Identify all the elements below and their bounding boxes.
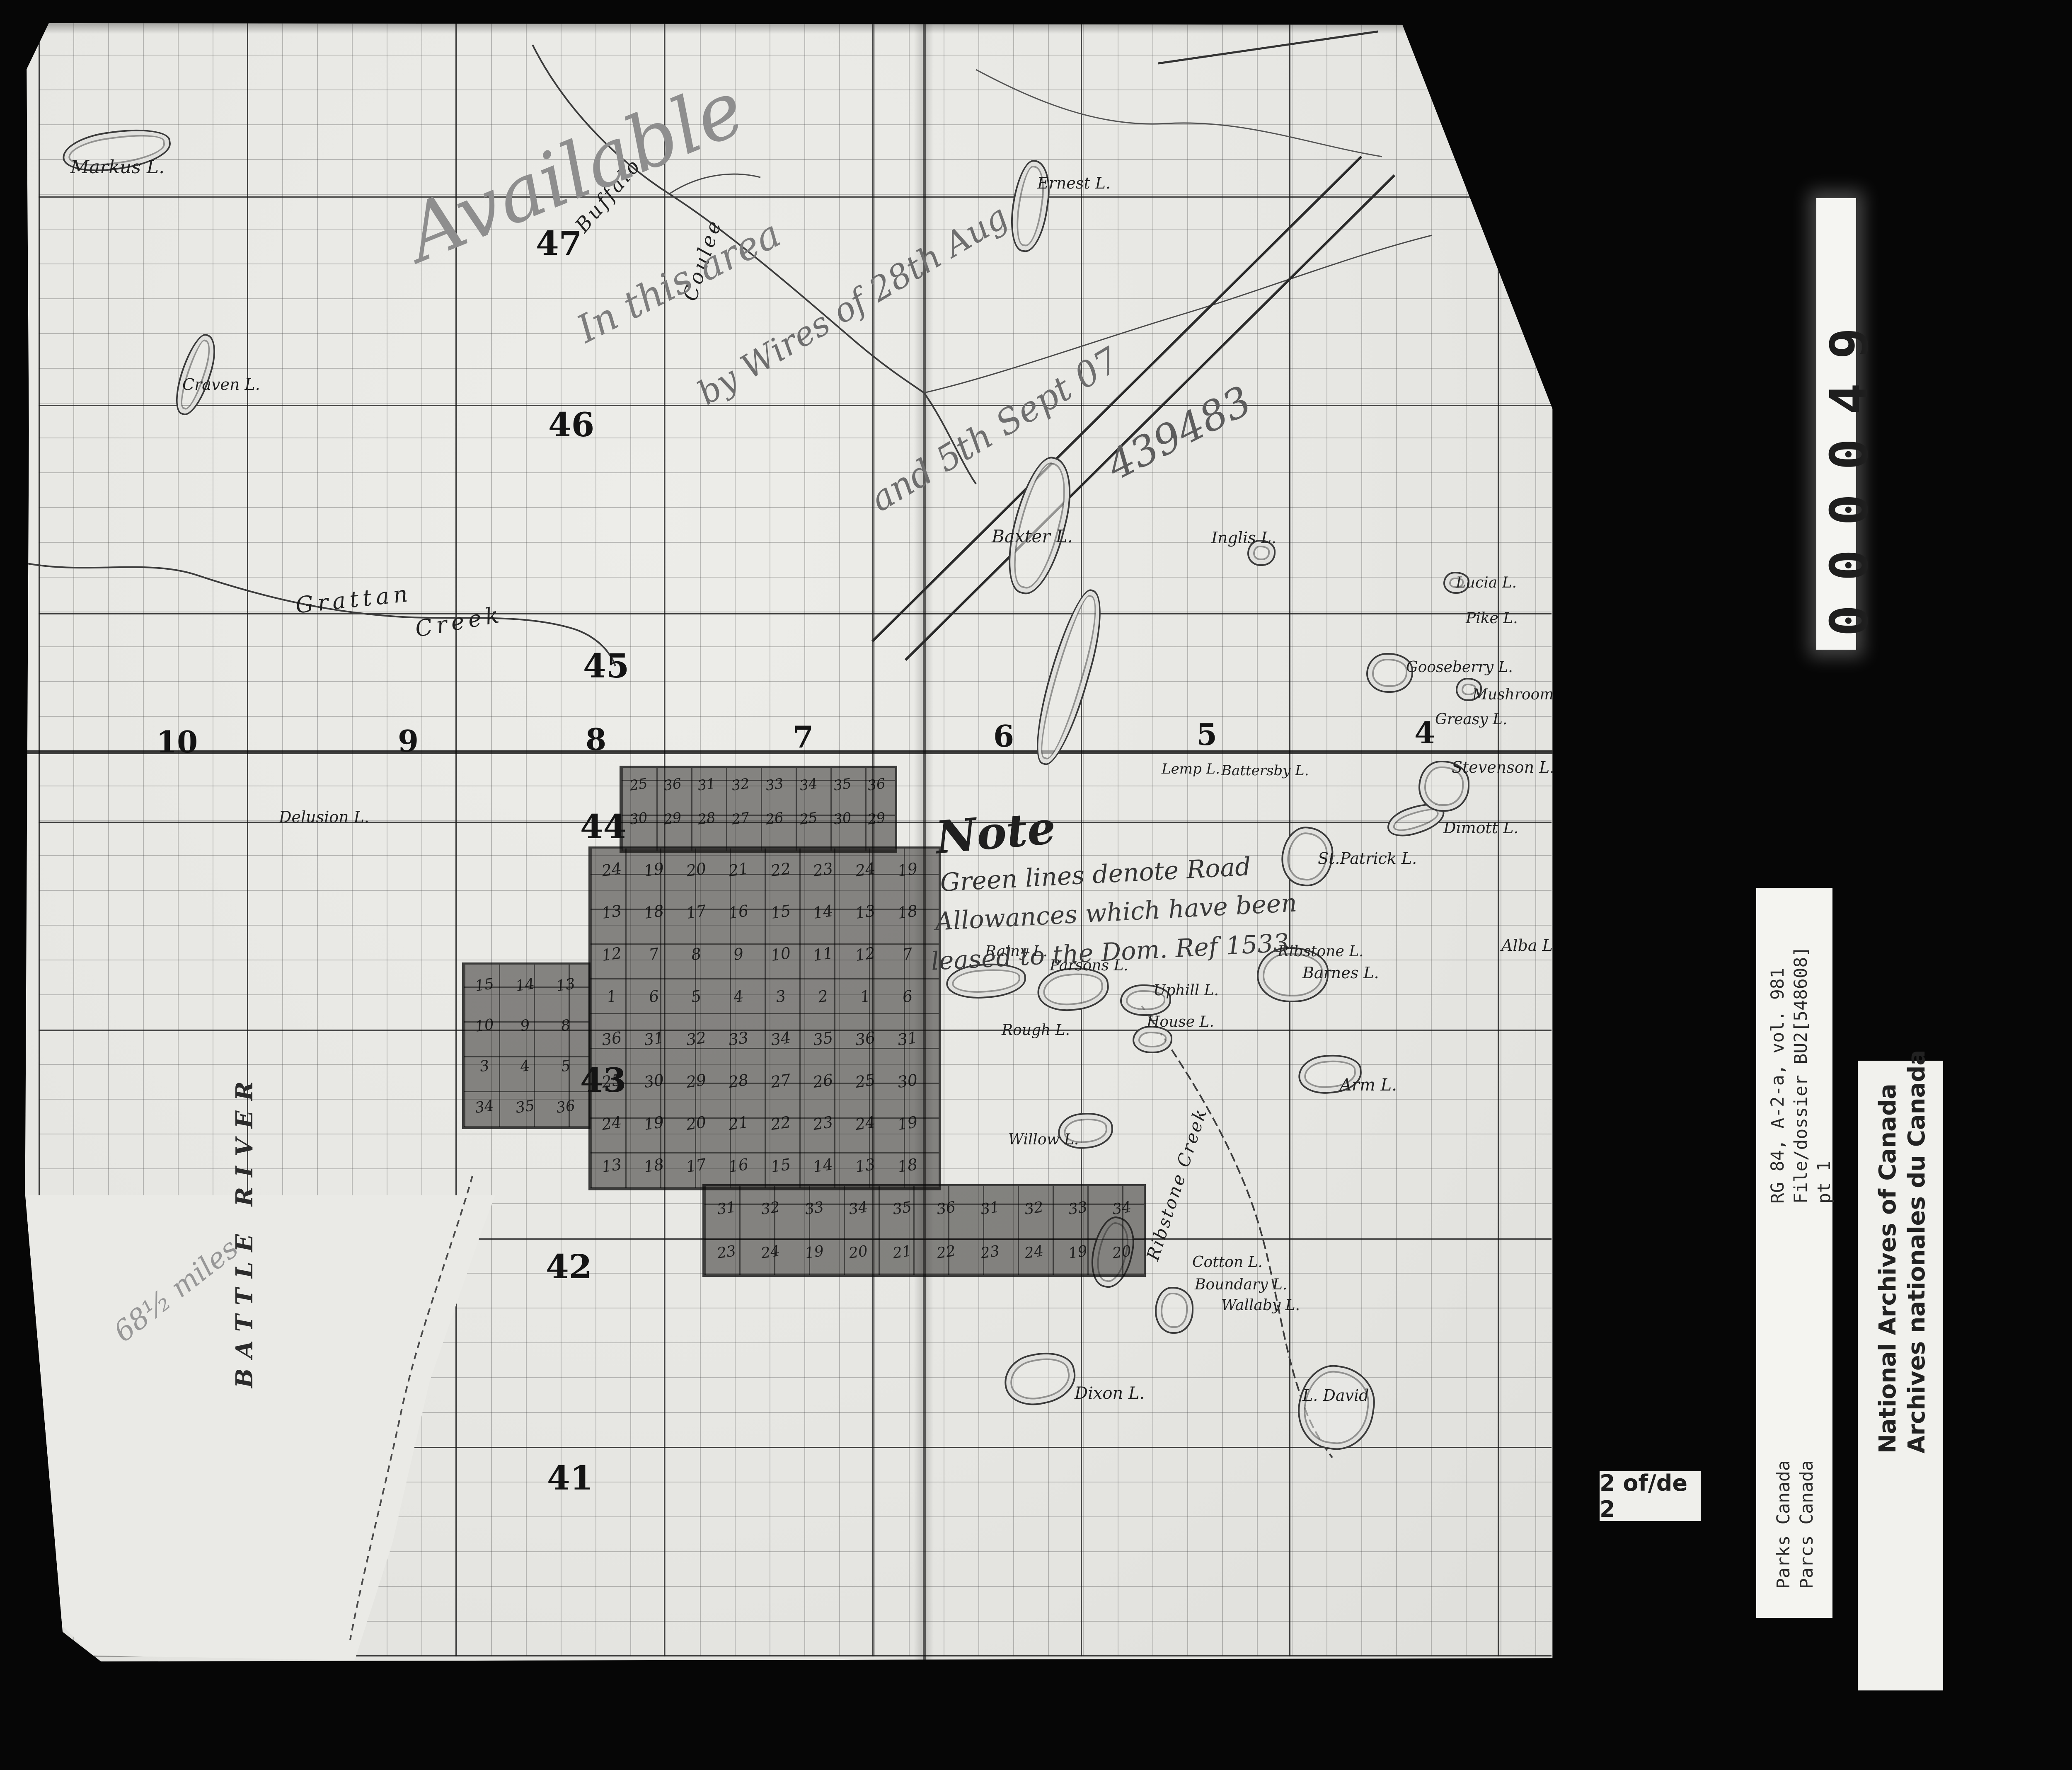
section-number: 14 [799, 888, 847, 936]
lake-label: St.Patrick L. [1318, 849, 1417, 868]
section-number: 18 [630, 1141, 678, 1188]
lake-label: Greasy L. [1435, 711, 1507, 728]
north-contours [976, 70, 1382, 157]
section-number: 31 [965, 1186, 1015, 1233]
township-number: 45 [583, 646, 629, 685]
section-number: 33 [714, 1015, 762, 1062]
lake-label: Markus L. [70, 157, 165, 178]
lake-label: Lemp L. [1162, 761, 1220, 777]
lake-label: Baxter L. [992, 526, 1073, 546]
lake-label: Ernest L. [1037, 174, 1111, 192]
section-number: 13 [591, 888, 636, 936]
section-number: 36 [654, 768, 692, 804]
film-counter-number: 000049 [1819, 304, 1880, 636]
section-number: 21 [877, 1227, 927, 1275]
lake-label: Rough L. [1002, 1022, 1070, 1039]
township-number: 42 [546, 1247, 592, 1286]
section-number: 18 [884, 888, 931, 936]
section-number: 25 [841, 1057, 889, 1105]
section-number: 14 [799, 1141, 847, 1188]
section-number: 15 [757, 888, 804, 936]
lake-label: Dimott L. [1443, 819, 1518, 837]
section-number: 7 [630, 930, 678, 978]
section-number: 18 [884, 1141, 931, 1188]
section-number: 21 [714, 1099, 762, 1147]
archival-reference-text: RG 84, A-2-a, vol. 981 File/dossier BU2[… [1766, 946, 1836, 1204]
pencil-diagonal-3 [1158, 31, 1378, 63]
section-number: 28 [714, 1057, 762, 1105]
leased-township-block: 1514131098345343536 [464, 965, 588, 1127]
section-number: 25 [789, 800, 828, 838]
handwritten-annotation: Note [934, 802, 1058, 864]
section-number: 15 [757, 1141, 804, 1188]
section-number: 36 [921, 1186, 971, 1233]
section-number: 26 [799, 1057, 847, 1105]
department-text: Parks Canada Parcs Canada [1772, 1460, 1818, 1589]
section-number: 1 [841, 972, 889, 1020]
section-number: 22 [921, 1227, 971, 1275]
lake-label: Battersby L. [1221, 762, 1309, 779]
section-number: 20 [672, 1099, 720, 1147]
lake-label: Inglis L. [1211, 529, 1276, 547]
section-number: 29 [654, 800, 692, 838]
section-number: 36 [857, 768, 895, 804]
section-number: 36 [841, 1015, 889, 1062]
section-number: 31 [687, 768, 726, 804]
section-number: 9 [502, 1003, 548, 1049]
township-number: 41 [547, 1458, 593, 1497]
section-number: 23 [799, 849, 847, 894]
section-number: 32 [672, 1015, 720, 1062]
lake-label: Delusion L. [279, 808, 369, 826]
section-number: 10 [757, 930, 804, 978]
lake-shape [1155, 1287, 1193, 1334]
lake-label: Lucia L. [1456, 574, 1517, 591]
lake-label: Arm L. [1340, 1076, 1397, 1095]
section-number: 19 [884, 1099, 931, 1147]
section-number: 3 [757, 972, 804, 1020]
lake-label: Uphill L. [1153, 982, 1219, 999]
reference-line: RG 84, A-2-a, vol. 981 [1766, 946, 1789, 1204]
section-number: 34 [464, 1084, 507, 1127]
section-number: 23 [965, 1227, 1015, 1275]
section-number: 14 [502, 965, 548, 1008]
section-number: 9 [714, 930, 762, 978]
national-archives-strip: National Archives of Canada Archives nat… [1858, 1061, 1943, 1690]
section-number: 4 [502, 1043, 548, 1089]
section-number: 25 [622, 768, 658, 804]
section-number: 3 [464, 1043, 507, 1089]
lake-label: Cotton L. [1192, 1254, 1263, 1271]
township-number: 43 [580, 1061, 626, 1100]
section-number: 34 [789, 768, 828, 804]
section-number: 8 [672, 930, 720, 978]
microfilm-scan: { "film": { "counter_number": "000049", … [0, 0, 2072, 1770]
department-line: Parks Canada [1772, 1460, 1795, 1589]
section-number: 20 [1097, 1227, 1144, 1275]
section-number: 12 [841, 930, 889, 978]
section-number: 30 [823, 800, 862, 838]
section-number: 35 [502, 1084, 548, 1127]
section-number: 27 [721, 800, 760, 838]
section-number: 36 [591, 1015, 636, 1062]
section-number: 6 [884, 972, 931, 1020]
leased-township-block: 2419202122232419131817161514131812789101… [591, 849, 939, 1188]
section-number: 31 [884, 1015, 931, 1062]
range-number: 7 [793, 719, 813, 754]
leased-township-block: 3132333435363132333423241920212223241920 [704, 1186, 1144, 1275]
section-number: 30 [622, 800, 658, 838]
archival-reference-strip: RG 84, A-2-a, vol. 981 File/dossier BU2[… [1756, 888, 1832, 1618]
section-number: 32 [746, 1186, 795, 1233]
range-number: 8 [586, 722, 606, 757]
section-number: 29 [857, 800, 895, 838]
section-number: 10 [464, 1003, 507, 1049]
section-number: 20 [672, 849, 720, 894]
section-number: 34 [1097, 1186, 1144, 1233]
section-number: 31 [630, 1015, 678, 1062]
section-number: 21 [714, 849, 762, 894]
range-number: 10 [156, 724, 198, 759]
section-number: 18 [630, 888, 678, 936]
lake-label: Alba L. [1501, 936, 1558, 955]
section-number: 24 [841, 849, 889, 894]
section-number: 2 [799, 972, 847, 1020]
section-number: 29 [672, 1057, 720, 1105]
page-count-label: 2 of/de 2 [1600, 1471, 1701, 1521]
section-number: 8 [543, 1003, 588, 1049]
section-number: 19 [630, 849, 678, 894]
lake-label: Gooseberry L. [1406, 659, 1513, 676]
section-number: 19 [1053, 1227, 1103, 1275]
lake-label: Craven L. [182, 375, 260, 394]
section-number: 23 [704, 1227, 751, 1275]
lake-label: Willow L. [1008, 1131, 1079, 1148]
department-line: Parcs Canada [1795, 1460, 1818, 1589]
section-number: 24 [591, 849, 636, 894]
section-number: 27 [757, 1057, 804, 1105]
section-number: 35 [799, 1015, 847, 1062]
section-number: 22 [757, 1099, 804, 1147]
lake-label: Boundary L. [1195, 1276, 1287, 1293]
section-number: 4 [714, 972, 762, 1020]
section-number: 22 [757, 849, 804, 894]
section-number: 26 [755, 800, 794, 838]
section-number: 24 [746, 1227, 795, 1275]
section-number: 20 [833, 1227, 883, 1275]
township-number: 44 [580, 807, 626, 846]
section-number: 24 [841, 1099, 889, 1147]
section-number: 32 [721, 768, 760, 804]
section-number: 16 [714, 1141, 762, 1188]
section-number: 16 [714, 888, 762, 936]
range-number: 9 [398, 723, 419, 759]
section-number: 12 [591, 930, 636, 978]
lake-label: Pike L. [1466, 610, 1518, 627]
section-number: 30 [630, 1057, 678, 1105]
section-number: 31 [704, 1186, 751, 1233]
range-number: 4 [1414, 715, 1435, 750]
battle-river-label: BATTLE RIVER [231, 1071, 258, 1388]
section-number: 5 [672, 972, 720, 1020]
lake-label: Barnes L. [1302, 964, 1379, 982]
leased-township-block: 25363132333435363029282726253029 [622, 768, 895, 851]
section-number: 13 [841, 1141, 889, 1188]
section-number: 17 [672, 888, 720, 936]
section-number: 15 [464, 965, 507, 1008]
township-number: 46 [548, 405, 594, 444]
section-number: 1 [591, 972, 636, 1020]
lake-label: L. David [1302, 1386, 1369, 1405]
section-number: 28 [687, 800, 726, 838]
section-number: 23 [799, 1099, 847, 1147]
lake-label: Wallaby L. [1221, 1297, 1300, 1314]
section-number: 19 [630, 1099, 678, 1147]
lake-label: Dixon L. [1075, 1384, 1145, 1403]
section-number: 24 [1009, 1227, 1059, 1275]
section-number: 35 [877, 1186, 927, 1233]
section-number: 24 [591, 1099, 636, 1147]
archives-line-en: National Archives of Canada [1874, 1050, 1903, 1453]
section-number: 13 [543, 965, 588, 1008]
archives-line-fr: Archives nationales du Canada [1903, 1050, 1932, 1453]
section-number: 33 [1053, 1186, 1103, 1233]
section-number: 6 [630, 972, 678, 1020]
section-number: 33 [755, 768, 794, 804]
lake-label: House L. [1147, 1013, 1214, 1030]
page-count-text: 2 of/de 2 [1600, 1470, 1701, 1522]
lake-label: Mushroom [1472, 686, 1554, 703]
battle-river-edge [350, 1176, 472, 1640]
range-number: 6 [993, 718, 1014, 754]
section-number: 11 [799, 930, 847, 978]
range-number: 5 [1196, 717, 1217, 752]
reference-line: pt 1 [1813, 946, 1836, 1204]
section-number: 30 [884, 1057, 931, 1105]
section-number: 32 [1009, 1186, 1059, 1233]
film-counter-label: 000049 [1816, 198, 1856, 650]
section-number: 19 [884, 849, 931, 894]
section-number: 35 [823, 768, 862, 804]
map-sheet: 2536313233343536302928272625302924192021… [23, 20, 1554, 1661]
section-number: 34 [757, 1015, 804, 1062]
national-archives-text: National Archives of Canada Archives nat… [1874, 1050, 1932, 1453]
section-number: 7 [884, 930, 931, 978]
section-number: 13 [841, 888, 889, 936]
section-number: 17 [672, 1141, 720, 1188]
section-number: 19 [789, 1227, 839, 1275]
section-number: 34 [833, 1186, 883, 1233]
reference-line: File/dossier BU2[548608] [1789, 946, 1813, 1204]
lake-label: Ribstone L. [1278, 943, 1364, 960]
section-number: 13 [591, 1141, 636, 1188]
section-number: 33 [789, 1186, 839, 1233]
lake-label: Stevenson L. [1452, 758, 1554, 776]
